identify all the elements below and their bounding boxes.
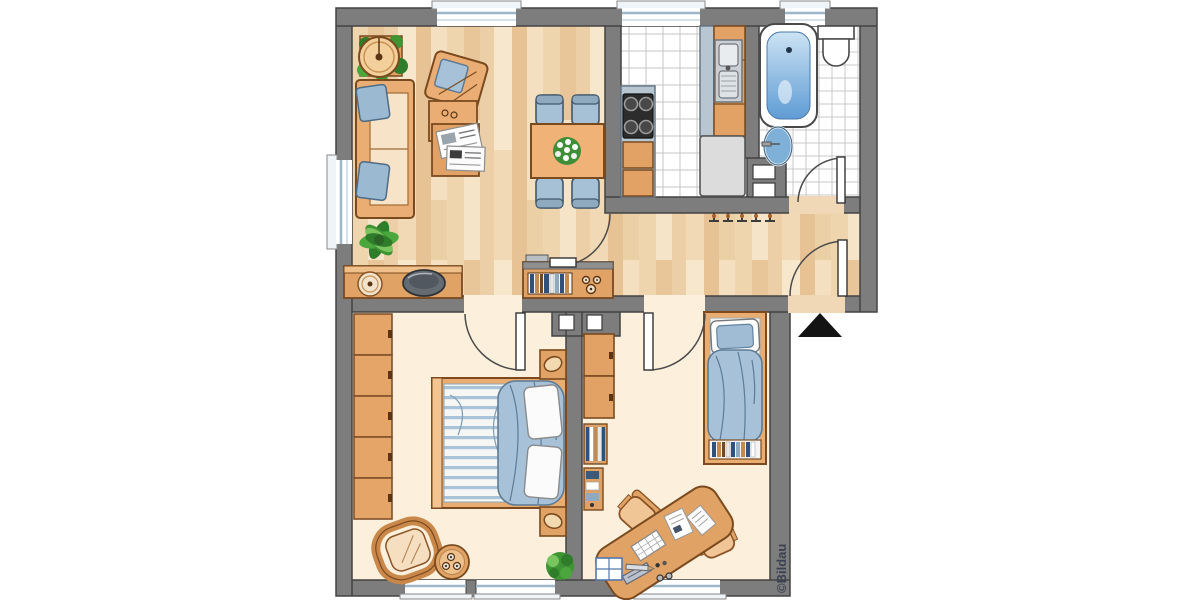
window-living-top — [432, 1, 521, 26]
floor-plan-page: ©Bildau — [0, 0, 1200, 600]
nightstand — [540, 350, 566, 379]
shaft-bath-1 — [753, 165, 775, 179]
cabinet — [584, 334, 614, 418]
opening-bedroom — [464, 295, 522, 313]
bathtub — [760, 24, 817, 127]
decor-bowl — [403, 270, 445, 296]
dining-chair — [572, 177, 599, 208]
round-table — [435, 545, 469, 579]
dining-chair — [572, 95, 599, 126]
potted-plant — [546, 552, 574, 580]
base-cabinet — [623, 142, 653, 168]
sideboard — [344, 266, 462, 298]
nightstand — [540, 507, 566, 536]
book-row — [709, 440, 761, 459]
counter-right — [700, 26, 714, 136]
shaft-hall-1 — [559, 315, 574, 330]
stove — [623, 94, 653, 138]
opening-bathroom — [789, 196, 844, 214]
opening-entrance — [788, 295, 845, 313]
window-kitchen-top — [617, 1, 705, 26]
shaft-bath-2 — [753, 183, 775, 197]
kitchen-sink — [715, 40, 742, 102]
washbasin — [762, 127, 792, 165]
refrigerator — [700, 136, 745, 196]
floor-plan: ©Bildau — [0, 0, 1200, 600]
window-bath-top — [780, 1, 830, 26]
opening-office — [644, 295, 705, 313]
window-bedroom-bottom — [400, 580, 560, 599]
window-living-left — [327, 155, 352, 249]
double-bed — [432, 378, 566, 508]
single-bed — [704, 312, 766, 464]
entrance-arrow — [798, 313, 842, 337]
copyright-text: ©Bildau — [774, 544, 789, 593]
wardrobe — [354, 314, 392, 519]
shaft-hall-2 — [587, 315, 602, 330]
dining-chair — [536, 95, 563, 126]
dining-chair — [536, 177, 563, 208]
round-side-table — [359, 37, 399, 77]
books — [528, 273, 572, 294]
base-cabinet — [623, 170, 653, 196]
side-box — [596, 558, 622, 580]
flower-centerpiece — [553, 137, 581, 165]
sofa — [356, 80, 414, 218]
